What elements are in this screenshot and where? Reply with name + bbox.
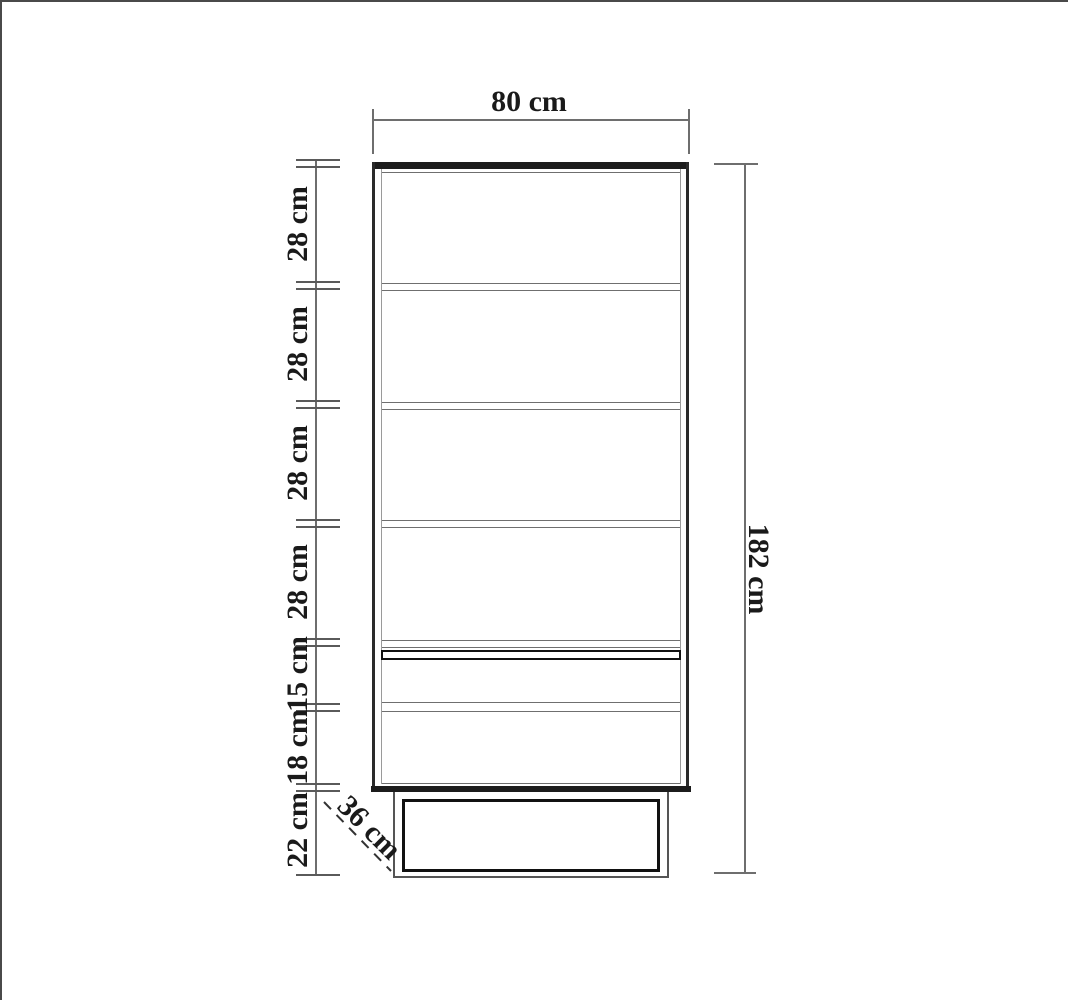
dimension-drawing: 80 cm 28 cm 28 cm 28 cm 28 cm 15 cm 18 c… [0, 0, 1068, 1000]
depth-dimension-dashed-line [2, 2, 1068, 1000]
